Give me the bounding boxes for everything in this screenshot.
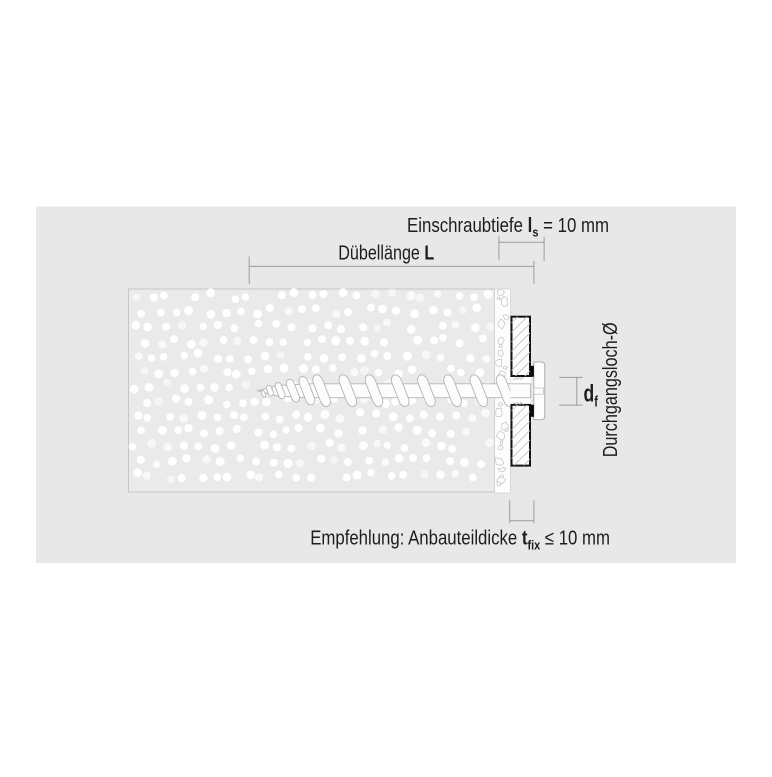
svg-text:Empfehlung: Anbauteildicke tfi: Empfehlung: Anbauteildicke tfix ≤ 10 mm	[310, 526, 610, 552]
svg-text:Einschraubtiefe ls = 10 mm: Einschraubtiefe ls = 10 mm	[407, 213, 609, 239]
svg-text:Dübellänge L: Dübellänge L	[338, 242, 434, 264]
svg-text:Durchgangsloch-Ø: Durchgangsloch-Ø	[599, 322, 621, 457]
